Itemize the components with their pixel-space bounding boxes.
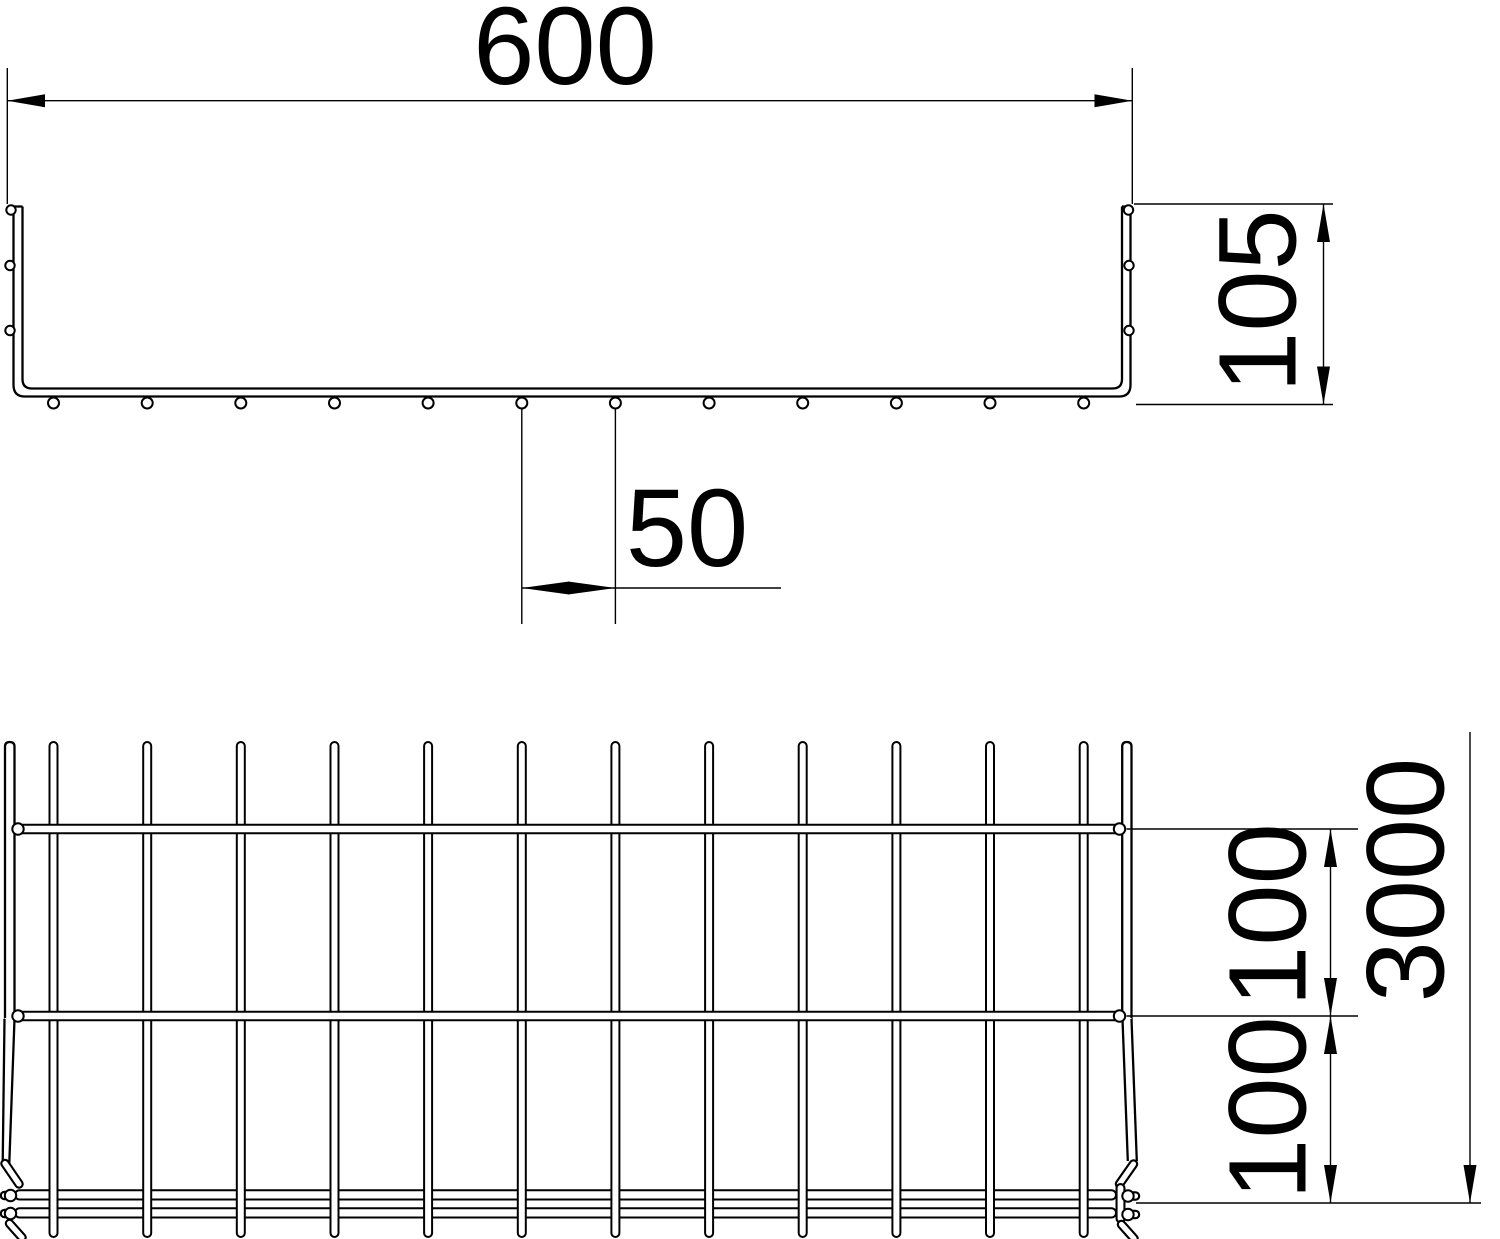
arrowhead-left (7, 94, 45, 107)
bottom-wire-circles (48, 398, 1089, 409)
profile-inner-line (23, 207, 1123, 389)
edge-wire-left (3, 742, 22, 1238)
longitudinal-wire (799, 742, 807, 1237)
cross-section-view: 600 105 50 (5, 0, 1333, 624)
longitudinal-wire (424, 742, 432, 1237)
dim-length-3000: 3000 (1345, 732, 1477, 1203)
end-hook-left (5, 1164, 23, 1238)
bottom-wire-circle (797, 398, 808, 409)
edge-wire-left-upper (5, 742, 15, 1020)
bottom-wire-circle (423, 398, 434, 409)
weld-circle (1114, 823, 1125, 834)
longitudinal-wire (518, 742, 526, 1237)
side-wire-circles (5, 261, 1133, 335)
end-rail (15, 1208, 1116, 1217)
cross-wires (12, 823, 1125, 1021)
edge-wire-right-upper (1122, 742, 1131, 1020)
dim-height-105: 105 (1134, 204, 1333, 405)
hook-wire-end-circle (1122, 1190, 1133, 1201)
longitudinal-wire (237, 742, 245, 1237)
longitudinal-wire (1080, 742, 1088, 1237)
longitudinal-wire (50, 742, 58, 1237)
bottom-wire-circle (235, 398, 246, 409)
bottom-wire-circle (48, 398, 59, 409)
bottom-wire-circle (985, 398, 996, 409)
weld-circle (12, 1010, 23, 1021)
longitudinal-wire (611, 742, 619, 1237)
longitudinal-wire (986, 742, 994, 1237)
arrowhead-right (568, 582, 615, 595)
rim-wire-circles (6, 205, 1133, 214)
dim-spacing-50: 50 (522, 409, 781, 624)
tray-profile (5, 205, 1133, 408)
end-rail (15, 1190, 1116, 1199)
bottom-wire-circle (610, 398, 621, 409)
bottom-wire-circle (142, 398, 153, 409)
bottom-wire-circle (891, 398, 902, 409)
bottom-wire-circle (704, 398, 715, 409)
dim-height-label: 105 (1197, 209, 1320, 393)
side-wire-circle (1124, 326, 1133, 335)
arrowhead-right (1095, 94, 1133, 107)
longitudinal-wire (892, 742, 900, 1237)
cross-wire (16, 1012, 1120, 1021)
drawing-svg: 600 105 50 (0, 0, 1500, 1239)
end-hook-right (1120, 1164, 1136, 1239)
hook-wire-end-circle (5, 1208, 16, 1219)
side-wire-circle (1124, 261, 1133, 270)
weld-circle (12, 823, 23, 834)
dim-length-label: 3000 (1345, 758, 1468, 1003)
arrowhead-down (1464, 1165, 1477, 1203)
rim-wire-circle (6, 205, 15, 214)
weld-circle (1114, 1010, 1125, 1021)
rim-wire-circle (1124, 205, 1133, 214)
longitudinal-wire (143, 742, 151, 1237)
cross-wire (16, 825, 1120, 834)
side-wire-circle (5, 261, 14, 270)
dim-width-label: 600 (473, 0, 657, 108)
side-wire-circle (5, 326, 14, 335)
longitudinal-wires (50, 742, 1088, 1237)
longitudinal-wire (705, 742, 713, 1237)
edge-wire-right (1120, 742, 1137, 1239)
end-rails (15, 1190, 1116, 1217)
profile-outer-line (14, 207, 1131, 397)
dim-pitch-upper-label: 100 (1207, 823, 1330, 1007)
bottom-wire-circle (516, 398, 527, 409)
dim-width-600: 600 (7, 0, 1132, 204)
plan-view: 100 100 3000 (3, 732, 1481, 1239)
longitudinal-wire (331, 742, 339, 1237)
bottom-wire-circle (329, 398, 340, 409)
arrowhead-left (522, 582, 569, 595)
hook-wire-end-circle (5, 1190, 16, 1201)
dim-spacing-label: 50 (626, 467, 748, 590)
hook-wire-end-circle (1122, 1209, 1133, 1220)
bottom-wire-circle (1078, 398, 1089, 409)
dim-pitch-lower-label: 100 (1207, 1016, 1330, 1200)
technical-drawing-page: 600 105 50 (0, 0, 1500, 1239)
